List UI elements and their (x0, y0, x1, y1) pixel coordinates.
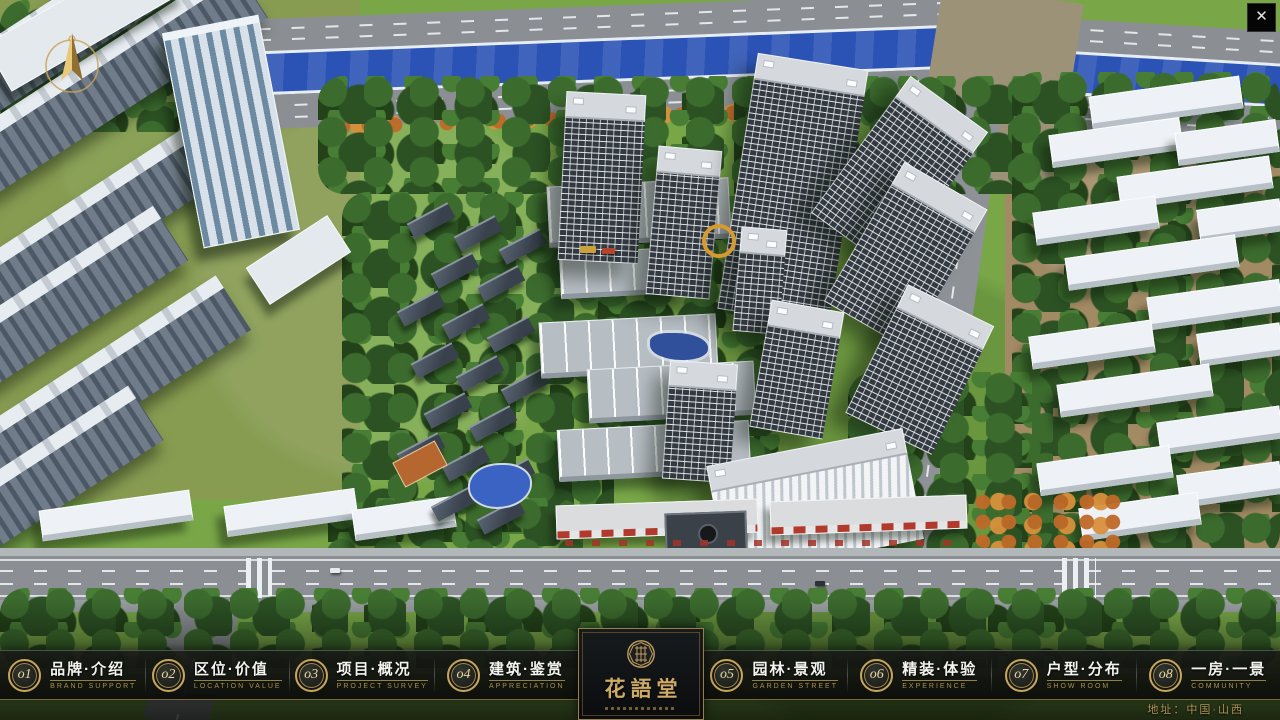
menu-subtitle: BRAND SUPPORT (50, 680, 136, 690)
menu-badge: o5 (710, 659, 743, 692)
tower-roof (668, 360, 738, 392)
close-button[interactable]: ✕ (1247, 3, 1276, 32)
playground-ring (702, 224, 736, 258)
retail-canopy (769, 495, 967, 536)
menu-group-left: o1 品牌·介绍 BRAND SUPPORT o2 区位·价值 LOCATION… (0, 651, 578, 699)
garden-trees (975, 492, 1125, 548)
entrance-gate (664, 511, 747, 554)
menu-title: 户型·分布 (1047, 661, 1122, 678)
menu-title: 精装·体验 (902, 661, 977, 678)
shuttle-bus (602, 248, 615, 254)
seal-emblem-icon (626, 639, 656, 669)
car (815, 581, 825, 586)
menu-item-interior[interactable]: o6 精装·体验 EXPERIENCE (847, 651, 992, 699)
menu-badge: o2 (152, 659, 185, 692)
menu-item-garden[interactable]: o5 园林·景观 GARDEN STREET (702, 651, 847, 699)
menu-title: 建筑·鉴赏 (489, 661, 564, 678)
menu-subtitle: APPRECIATION (489, 680, 565, 690)
menu-title: 品牌·介绍 (50, 661, 125, 678)
tower-roof (739, 226, 787, 257)
shuttle-bus (580, 246, 596, 253)
residential-tower (646, 145, 723, 298)
menu-badge: o8 (1149, 659, 1182, 692)
parked-cars (565, 540, 955, 546)
menu-badge: o7 (1005, 659, 1038, 692)
address-text: 地址：中国·山西 (1147, 701, 1244, 717)
menu-group-right: o5 园林·景观 GARDEN STREET o6 精装·体验 EXPERIEN… (702, 651, 1280, 699)
car (330, 568, 340, 573)
tower-roof (656, 145, 722, 177)
menu-item-brand[interactable]: o1 品牌·介绍 BRAND SUPPORT (0, 651, 145, 699)
menu-subtitle: EXPERIENCE (902, 680, 977, 690)
menu-title: 区位·价值 (194, 661, 269, 678)
menu-item-floorplan[interactable]: o7 户型·分布 SHOW ROOM (991, 651, 1136, 699)
menu-item-project[interactable]: o3 项目·概况 PROJECT SURVEY (289, 651, 434, 699)
project-logo[interactable]: 花語堂 (578, 628, 704, 720)
menu-badge: o3 (295, 659, 328, 692)
menu-item-view[interactable]: o8 一房·一景 COMMUNITY (1136, 651, 1280, 699)
tower-face (558, 118, 645, 264)
menu-badge: o6 (860, 659, 893, 692)
menu-title: 一房·一景 (1191, 661, 1266, 678)
menu-title: 园林·景观 (752, 661, 827, 678)
menu-subtitle: PROJECT SURVEY (337, 680, 428, 690)
menu-subtitle: SHOW ROOM (1047, 680, 1122, 690)
compass-icon (36, 26, 108, 103)
menu-badge: o1 (8, 659, 41, 692)
menu-subtitle: COMMUNITY (1191, 680, 1266, 690)
menu-item-location[interactable]: o2 区位·价值 LOCATION VALUE (145, 651, 290, 699)
logo-subline (605, 707, 677, 710)
menu-item-architecture[interactable]: o4 建筑·鉴赏 APPRECIATION (434, 651, 579, 699)
menu-subtitle: GARDEN STREET (752, 680, 838, 690)
logo-title: 花語堂 (600, 673, 683, 703)
menu-badge: o4 (447, 659, 480, 692)
menu-subtitle: LOCATION VALUE (194, 680, 282, 690)
tower-roof (565, 91, 646, 122)
menu-title: 项目·概况 (337, 661, 412, 678)
residential-tower (558, 91, 647, 263)
aerial-masterplan-render (0, 0, 1280, 720)
